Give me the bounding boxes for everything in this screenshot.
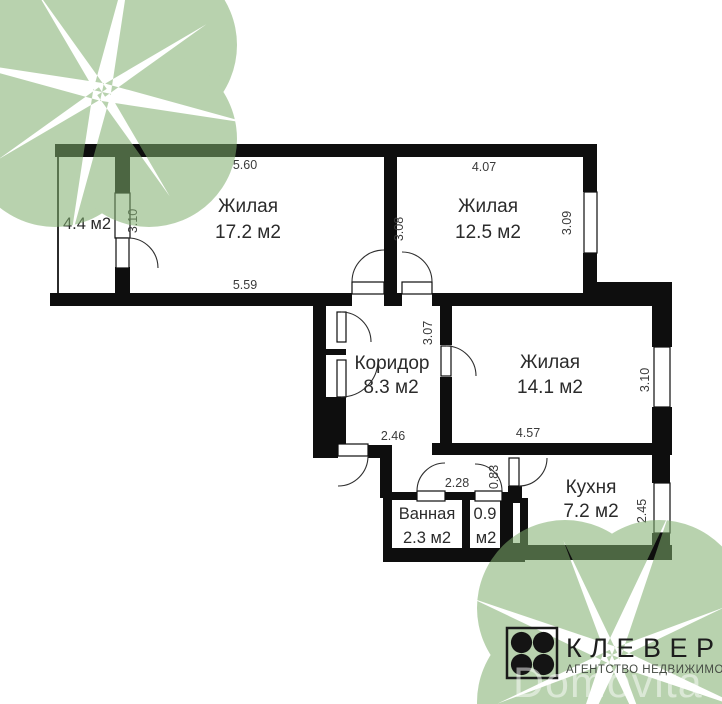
wall-segment (583, 144, 597, 192)
floorplan-image: 4.4 м2 Жилая 17.2 м2 Жилая 12.5 м2 Корид… (0, 0, 722, 704)
door-leaf-closet-top (337, 312, 346, 342)
label-kitchen-area: 7.2 м2 (563, 501, 618, 522)
label-living3-area: 14.1 м2 (517, 377, 583, 398)
door-swing-balcony (128, 238, 158, 268)
label-living1-area: 17.2 м2 (215, 222, 281, 243)
floorplan-svg: 4.4 м2 Жилая 17.2 м2 Жилая 12.5 м2 Корид… (0, 0, 722, 704)
wall-segment (508, 486, 522, 500)
dim-kitchen-right: 2.45 (635, 499, 649, 523)
label-wc-area: м2 (476, 529, 497, 547)
label-living1-name: Жилая (218, 196, 278, 217)
dim-top-living1: 5.60 (233, 158, 257, 172)
window-living2 (584, 192, 597, 253)
wall-segment (500, 498, 508, 549)
dim-corridor-bottom: 2.46 (381, 429, 405, 443)
label-wc-name: 0.9 (474, 505, 497, 523)
door-leaf-balcony (116, 238, 129, 268)
label-living3-name: Жилая (520, 352, 580, 373)
wall-segment (652, 455, 670, 483)
door-leaf-living3 (441, 346, 451, 376)
label-kitchen-name: Кухня (566, 477, 617, 498)
dim-living2-left: 3.08 (392, 217, 406, 241)
wall-segment (432, 443, 672, 455)
wall-segment (313, 445, 338, 458)
wall-segment (462, 498, 470, 549)
door-leaf-closet-bottom (337, 360, 346, 397)
wall-segment (440, 377, 452, 443)
door-leaf-kitchen (509, 458, 519, 486)
dim-bottom-living1: 5.59 (233, 278, 257, 292)
door-swing-living1 (352, 250, 384, 282)
wall-segment (326, 397, 346, 445)
wall-segment (445, 492, 475, 500)
label-corridor-area: 8.3 м2 (363, 377, 418, 398)
wall-segment (50, 293, 352, 306)
wall-segment (440, 306, 452, 345)
door-leaf-entrance (338, 444, 368, 456)
wall-segment (383, 498, 392, 551)
wall-segment (652, 293, 672, 347)
door-swing-entrance (338, 456, 368, 486)
dim-top-living2: 4.07 (472, 160, 496, 174)
label-bathroom-area: 2.3 м2 (403, 529, 451, 547)
clover-decoration-top-left (0, 0, 237, 227)
wall-segment (384, 293, 402, 306)
wall-segment (313, 306, 326, 458)
label-bathroom-name: Ванная (399, 505, 456, 523)
wall-segment (380, 455, 392, 498)
label-living2-area: 12.5 м2 (455, 222, 521, 243)
doors (116, 238, 547, 501)
dim-living3-bottom: 4.57 (516, 426, 540, 440)
door-leaf-living2 (402, 282, 432, 294)
door-leaf-living1 (352, 282, 384, 294)
wall-segment (652, 407, 672, 455)
door-leaf-bathroom (417, 491, 445, 501)
wall-segment (392, 492, 417, 500)
wall-segment (326, 349, 346, 355)
dim-corridor-right: 3.07 (421, 321, 435, 345)
door-swing-kitchen (519, 458, 547, 486)
label-corridor-name: Коридор (354, 353, 429, 374)
dim-living3-right: 3.10 (638, 368, 652, 392)
window-living3 (654, 347, 670, 407)
dim-wc-top: 0.83 (487, 465, 501, 489)
door-swing-bathroom (417, 463, 445, 491)
watermark: Domovita (513, 659, 703, 704)
dim-bathroom-top: 2.28 (445, 476, 469, 490)
door-leaf-wc (475, 491, 502, 501)
wall-segment (583, 253, 597, 282)
door-swing-living2 (402, 252, 432, 282)
label-living2-name: Жилая (458, 196, 518, 217)
dim-living2-right: 3.09 (560, 211, 574, 235)
wall-segment (115, 267, 130, 293)
